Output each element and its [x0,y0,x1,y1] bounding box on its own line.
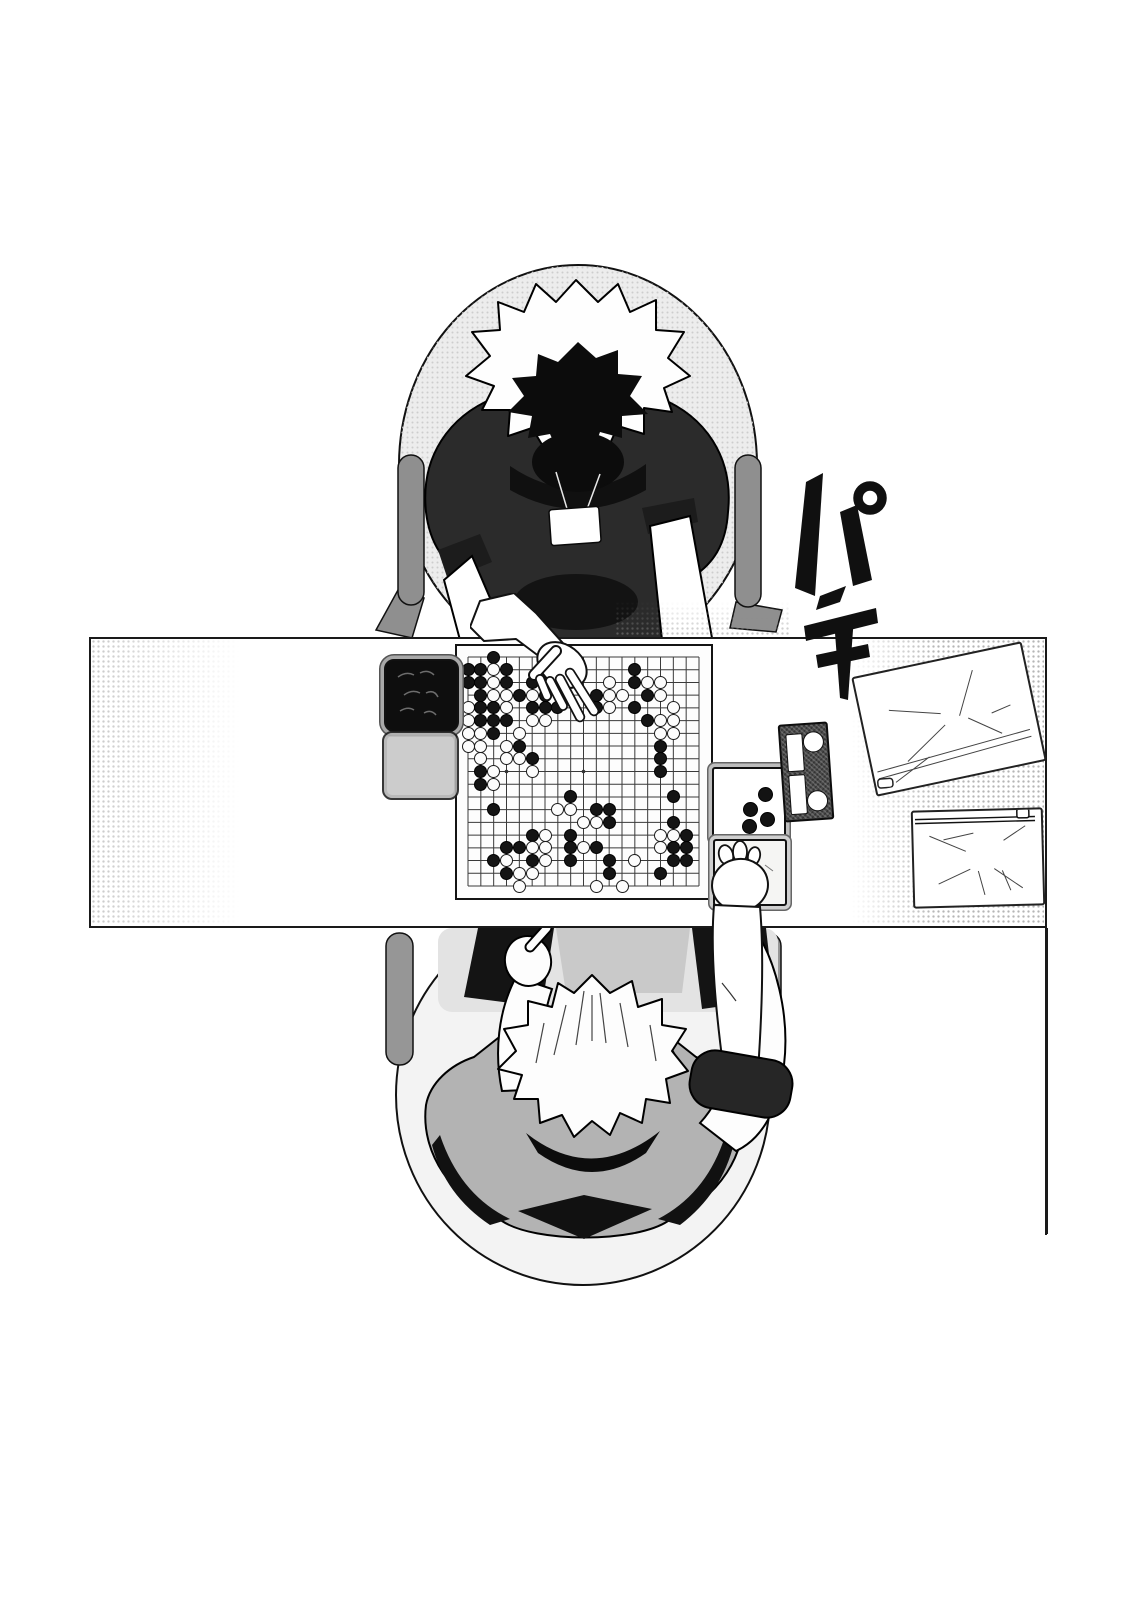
white-stone [539,854,552,867]
white-stone [526,867,539,880]
sleeve-bottom-player [688,1047,796,1122]
white-stone [500,854,513,867]
capture-tray [712,767,786,840]
white-stone [667,714,680,727]
white-stone [654,727,667,740]
black-stone [564,829,577,842]
hand-top-player [470,593,655,733]
black-stone [667,816,680,829]
black-stone [603,803,616,816]
captured-black-stone [742,819,757,834]
white-stone [526,765,539,778]
clock-display-top [785,733,805,772]
pouch-zipper-creases [913,809,1039,902]
white-stone [474,740,487,753]
white-stone [667,829,680,842]
white-stone [539,841,552,854]
armrest-right [735,455,761,607]
black-stone [500,867,513,880]
armrest-left-bottom [386,933,413,1065]
chi-stem [834,616,854,700]
handakuten [858,486,882,510]
zipper-slider [1017,809,1029,818]
black-stone [526,829,539,842]
black-stone [526,752,539,765]
captured-black-stone [758,787,773,802]
white-stone [577,816,590,829]
game-clock [778,721,835,822]
white-stone [590,880,603,893]
white-stone [616,880,629,893]
black-stone [526,854,539,867]
forearm-bottom-player [713,905,762,1073]
black-stone [667,854,680,867]
pa-stroke-right [840,505,872,586]
clock-button-top [802,731,824,753]
white-stone-bowl-lid [382,731,459,800]
white-stone [590,816,603,829]
white-stone [513,880,526,893]
white-stone [654,689,667,702]
captured-black-stone [760,812,775,827]
id-tag [549,506,601,545]
black-stone [590,803,603,816]
sfx-text: パチ [0,0,1,1]
pa-stroke-left [795,473,823,596]
white-stone [462,740,475,753]
stone-highlights [386,661,453,726]
white-stone [513,867,526,880]
white-stone [487,778,500,791]
chi-top-stroke [816,586,846,610]
clock-button-bottom [806,790,828,812]
table-side-edge [1045,928,1048,1234]
black-stone [513,740,526,753]
black-stone-bowl [384,659,459,732]
black-stone [603,867,616,880]
player-top [360,250,800,640]
zip-pouch-lower [911,807,1046,908]
black-stone [654,867,667,880]
armrest-left [398,455,424,605]
white-stone [539,829,552,842]
black-stone [603,854,616,867]
captured-black-stone [743,802,758,817]
black-stone [654,740,667,753]
black-stone [654,765,667,778]
pouch-tab [878,778,894,788]
white-stone [667,727,680,740]
white-stone [654,676,667,689]
white-stone [526,841,539,854]
clock-display-bottom [788,774,808,815]
arm-into-tray [688,833,823,1128]
black-stone [603,816,616,829]
manga-page: パチ [0,0,1127,1600]
white-stone [500,740,513,753]
black-stone [474,778,487,791]
white-stone [654,829,667,842]
sfx-pachi [778,458,898,708]
table-shading-left [91,639,241,925]
